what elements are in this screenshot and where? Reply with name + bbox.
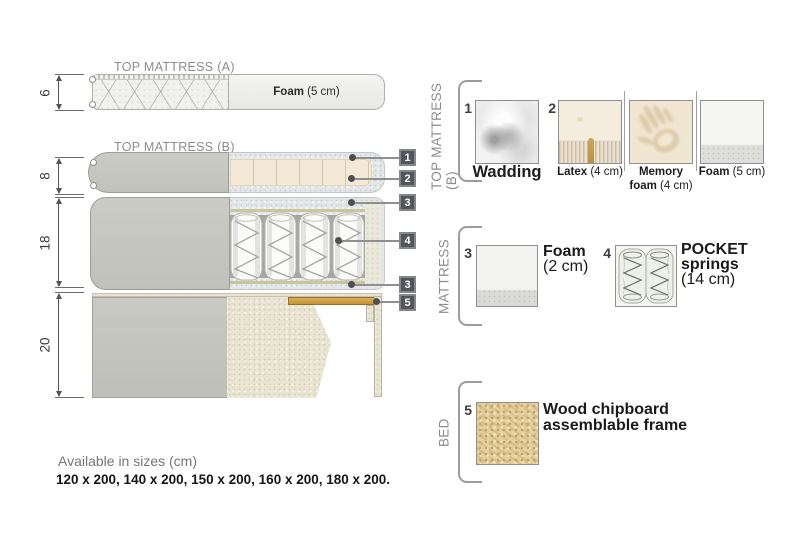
dimension-8: 8: [55, 157, 85, 195]
frame-notch: [366, 305, 374, 322]
button-tuft: [90, 182, 97, 189]
sizes-title: Available in sizes (cm): [58, 453, 197, 469]
fabric-cover: [90, 197, 230, 290]
foam-2cm-swatch: [476, 245, 538, 307]
top-mattress-a-title: TOP MATTRESS (A): [114, 60, 235, 74]
arrow-down-icon: [56, 391, 62, 397]
marker-badge-2: 2: [399, 170, 416, 187]
section-label-top-mattress-b: TOP MATTRESS (B): [434, 72, 454, 190]
marker-badge-4: 4: [399, 232, 416, 249]
pocket-springs-illustration: [230, 212, 366, 281]
foam-2cm-label: Foam (2 cm): [543, 245, 588, 275]
dimension-tick: [55, 194, 84, 195]
quilt-ruffle-edge: [93, 75, 228, 80]
leader-dot: [373, 298, 380, 305]
arrow-up-icon: [56, 293, 62, 299]
leader-line: [351, 178, 399, 180]
sizes-list: 120 x 200, 140 x 200, 150 x 200, 160 x 2…: [56, 472, 390, 487]
dimension-label: 20: [38, 335, 53, 355]
dimension-20: 20: [55, 292, 85, 398]
foam-section: Foam (5 cm): [228, 74, 385, 110]
foam-5cm-swatch: [700, 100, 764, 164]
leader-line: [351, 284, 399, 286]
leader-line: [338, 240, 399, 242]
section-label-bed: BED: [434, 382, 454, 483]
mattress-core: [228, 197, 385, 290]
top-mattress-b-illustration: [88, 152, 385, 193]
section-label-mattress: MATTRESS: [434, 227, 454, 326]
leader-dot: [335, 237, 342, 244]
leader-dot: [349, 154, 356, 161]
mattress-illustration: [90, 197, 385, 290]
dimension-tick: [55, 110, 84, 111]
panel-number-2: 2: [543, 100, 556, 116]
foam-5cm-label: Foam (5 cm): [690, 167, 774, 179]
top-mattress-a-illustration: Foam (5 cm): [92, 74, 385, 110]
dimension-tick: [55, 397, 84, 398]
pocket-springs-swatch: [615, 245, 677, 307]
bed-filling: [227, 297, 331, 398]
dimension-label: 6: [38, 83, 53, 103]
latex-swatch: [558, 100, 622, 164]
dimension-6: 6: [55, 74, 85, 111]
arrow-down-icon: [56, 104, 62, 110]
wadding-quilt-section: [92, 74, 229, 110]
option-divider: [624, 91, 625, 171]
leader-dot: [348, 199, 355, 206]
wadding-label: Wadding: [465, 164, 549, 181]
leader-line: [351, 202, 399, 204]
pocket-spring-illustration: [616, 246, 676, 306]
fabric-cover: [92, 297, 228, 398]
memory-foam-swatch: [629, 100, 693, 164]
dimension-label: 8: [38, 166, 53, 186]
marker-badge-1: 1: [399, 149, 416, 166]
arrow-down-icon: [56, 188, 62, 194]
panel-number-4: 4: [598, 245, 611, 261]
marker-badge-3: 3: [399, 194, 416, 211]
panel-number-1: 1: [459, 100, 472, 116]
foam-label: Foam (5 cm): [273, 86, 339, 98]
foam-layer-bottom: [230, 281, 366, 284]
arrow-up-icon: [56, 198, 62, 204]
option-divider: [696, 91, 697, 171]
chipboard-swatch: [476, 402, 539, 465]
arrow-up-icon: [56, 75, 62, 81]
dimension-tick: [55, 287, 84, 288]
wadding-swatch: [475, 100, 539, 164]
pocket-springs-label: POCKET springs (14 cm): [681, 243, 748, 288]
arrow-down-icon: [56, 281, 62, 287]
button-tuft: [90, 159, 97, 166]
mattress-side-edge: [365, 201, 382, 286]
bed-base-illustration: [92, 293, 383, 398]
leader-dot: [348, 281, 355, 288]
foam-base-texture: [477, 289, 537, 306]
leader-dot: [348, 175, 355, 182]
dimension-18: 18: [55, 197, 85, 288]
wood-slat: [288, 297, 376, 305]
dimension-label: 18: [38, 233, 53, 253]
marker-badge-3b: 3: [399, 276, 416, 293]
panel-number-3: 3: [459, 245, 472, 261]
button-tuft: [89, 76, 96, 83]
latex-strand: [588, 138, 594, 163]
button-tuft: [89, 101, 96, 108]
fabric-cover: [88, 152, 229, 193]
hand-imprint-illustration: [630, 101, 692, 163]
latex-hole: [577, 117, 583, 122]
dimension-line: [58, 199, 59, 286]
chipboard-label: Wood chipboard assemblable frame: [543, 402, 687, 433]
dimension-line: [58, 294, 59, 396]
arrow-up-icon: [56, 158, 62, 164]
side-board: [374, 296, 382, 397]
marker-badge-5: 5: [399, 294, 416, 311]
leader-line: [377, 301, 399, 303]
leader-line: [352, 157, 399, 159]
foam-base-texture: [701, 146, 763, 163]
panel-number-5: 5: [459, 402, 472, 418]
mattress-construction-diagram: 6 8 18 20 TOP MATTRESS (A) TOP MATTRESS …: [0, 0, 800, 533]
